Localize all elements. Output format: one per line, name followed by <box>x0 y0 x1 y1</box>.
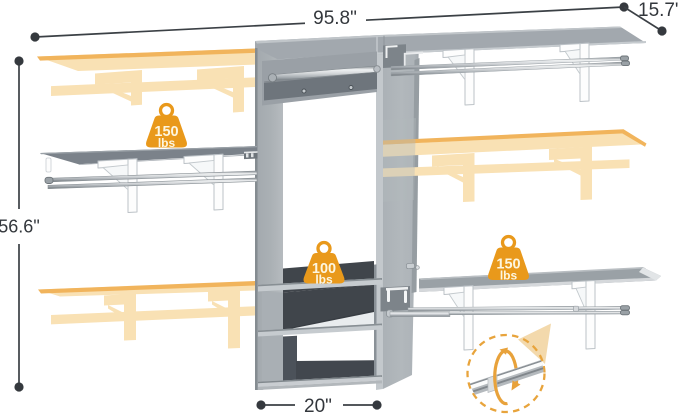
svg-text:lbs: lbs <box>500 269 518 283</box>
svg-text:lbs: lbs <box>315 273 333 287</box>
svg-text:15.7": 15.7" <box>638 0 679 21</box>
svg-text:20": 20" <box>304 396 332 417</box>
svg-text:95.8": 95.8" <box>313 8 357 29</box>
svg-text:56.6": 56.6" <box>0 217 40 237</box>
svg-text:lbs: lbs <box>158 136 176 150</box>
